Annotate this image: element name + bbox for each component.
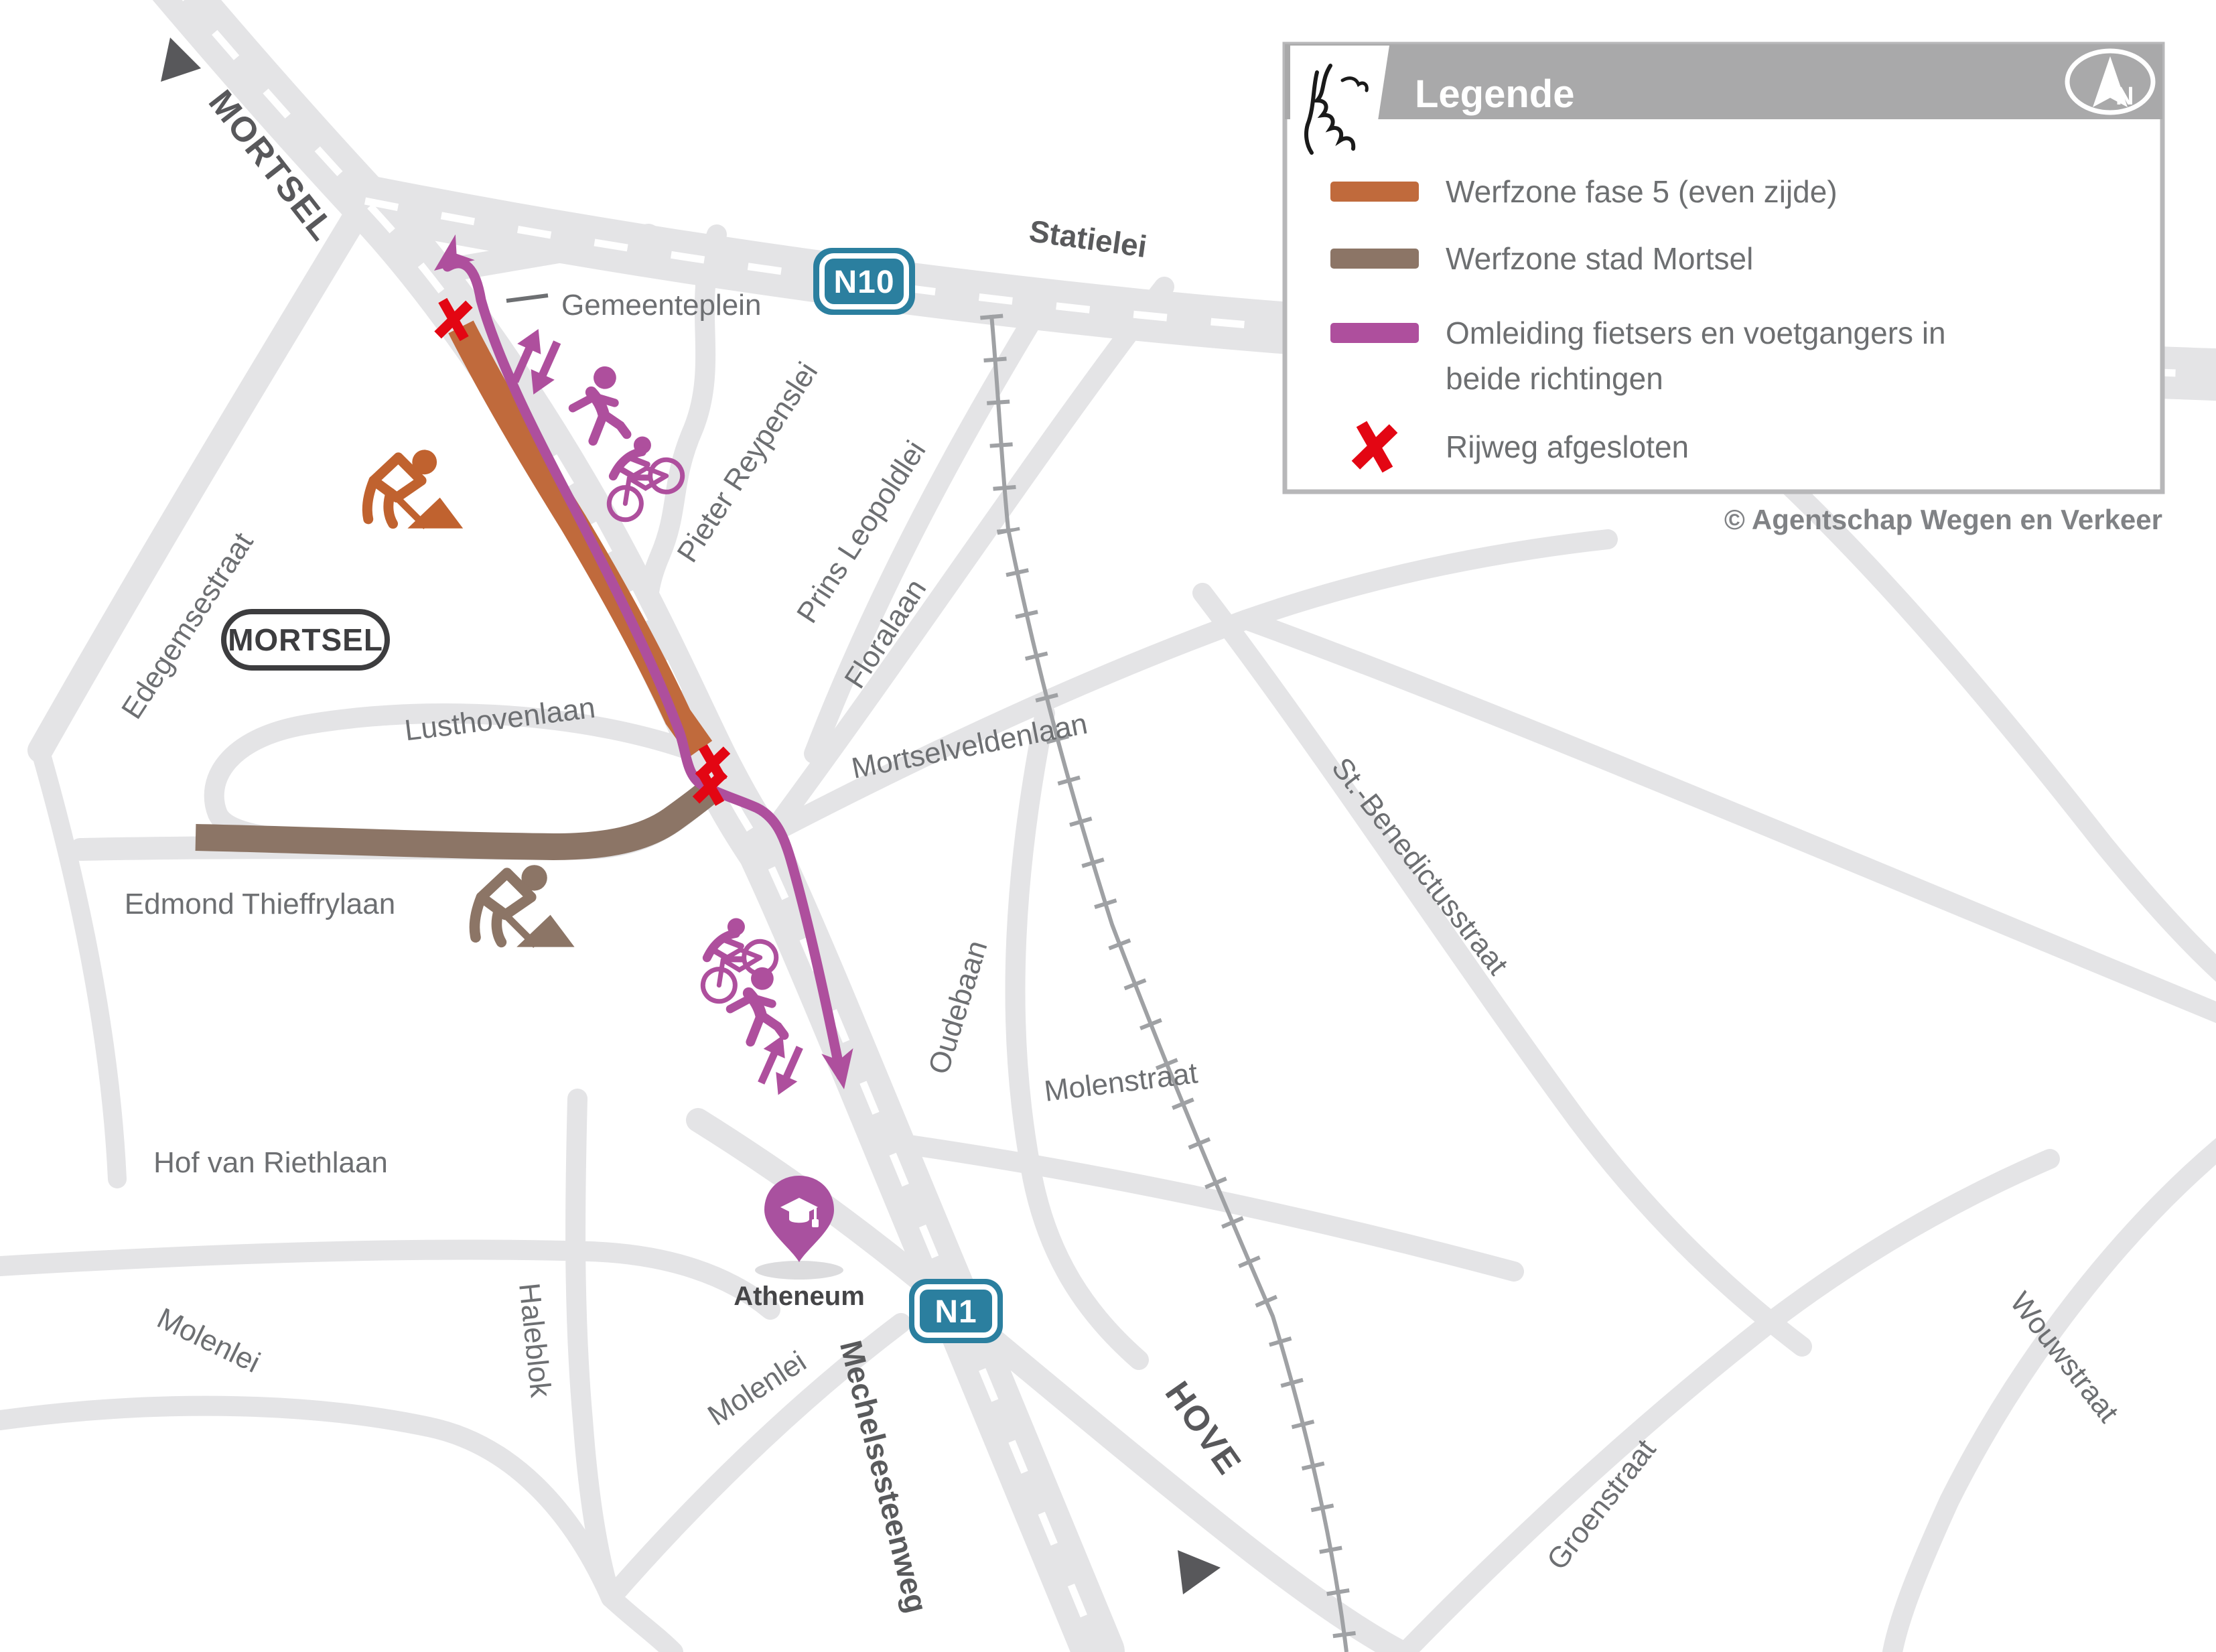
street-label-statielei: Statielei [1027,213,1149,264]
svg-text:Omleiding fietsers en voetgang: Omleiding fietsers en voetgangers in [1446,316,1946,350]
street-label-molenlei-west: Molenlei [152,1302,265,1379]
svg-text:Rijweg afgesloten: Rijweg afgesloten [1446,429,1689,464]
street-label-hof-van-riethlaan: Hof van Riethlaan [153,1146,388,1179]
roadworks-detour-map: Atheneum N10 N1 MORTSEL MORTSEL HOVE Sta… [0,0,2216,1652]
street-label-mechelsesteenweg: Mechelsesteenweg [833,1337,934,1616]
railway-line [991,315,1346,1652]
copyright-credit: © Agentschap Wegen en Verkeer [1724,504,2162,535]
svg-text:MORTSEL: MORTSEL [228,622,383,657]
road-haleblok [575,1099,611,1598]
legend-panel: Legende N Werfzone fase 5 (even zijde) W… [1285,44,2162,492]
street-label-oudebaan: Oudebaan [922,937,994,1078]
direction-label-hove: HOVE [1158,1375,1249,1483]
road-left-connector [40,750,117,1179]
road-molenlei-stub [611,1598,673,1652]
atheneum-label: Atheneum [734,1282,865,1311]
route-badge-n1: N1 [909,1279,1003,1343]
road-molenlei-west [0,1406,611,1598]
route-badge-n10: N10 [813,248,915,315]
direction-arrow-hove [1178,1550,1221,1594]
street-label-edmond-thieffrylaan: Edmond Thieffrylaan [125,888,395,920]
road-molenstraat [876,1140,1514,1271]
road-hof-van-riethlaan [0,1249,770,1310]
road-groenstraat [1405,1159,2050,1652]
street-label-gemeenteplein: Gemeenteplein [561,289,761,322]
svg-text:N10: N10 [833,265,894,300]
street-label-lusthovenlaan: Lusthovenlaan [403,691,597,748]
street-label-haleblok: Haleblok [512,1282,557,1399]
north-compass-icon: N [2067,51,2153,113]
pin-shadow [755,1261,843,1280]
cyclist-icon [679,909,782,1008]
svg-text:Werfzone stad Mortsel: Werfzone stad Mortsel [1446,241,1753,276]
svg-text:N: N [2116,82,2134,111]
gemeenteplein-pointer [506,295,548,301]
street-label-st-benedictusstraat: St.-Benedictusstraat [1325,752,1515,981]
pedestrian-icon [565,364,630,445]
street-label-mortselveldenlaan: Mortselveldenlaan [849,707,1090,785]
svg-text:N1: N1 [934,1294,977,1330]
svg-text:Werfzone fase 5 (even zijde): Werfzone fase 5 (even zijde) [1446,174,1838,209]
atheneum-pin [755,1176,843,1280]
werfzone-stad-line [196,790,710,847]
two-way-arrows-icon [749,1030,812,1100]
mortsel-city-oval: MORTSEL [224,612,387,668]
roadworks-worker-icon-brown [474,865,574,947]
legend-title: Legende [1415,72,1575,116]
roadworks-worker-icon-orange [367,450,463,528]
street-label-molenstraat: Molenstraat [1042,1056,1199,1108]
svg-text:beide richtingen: beide richtingen [1446,361,1663,396]
